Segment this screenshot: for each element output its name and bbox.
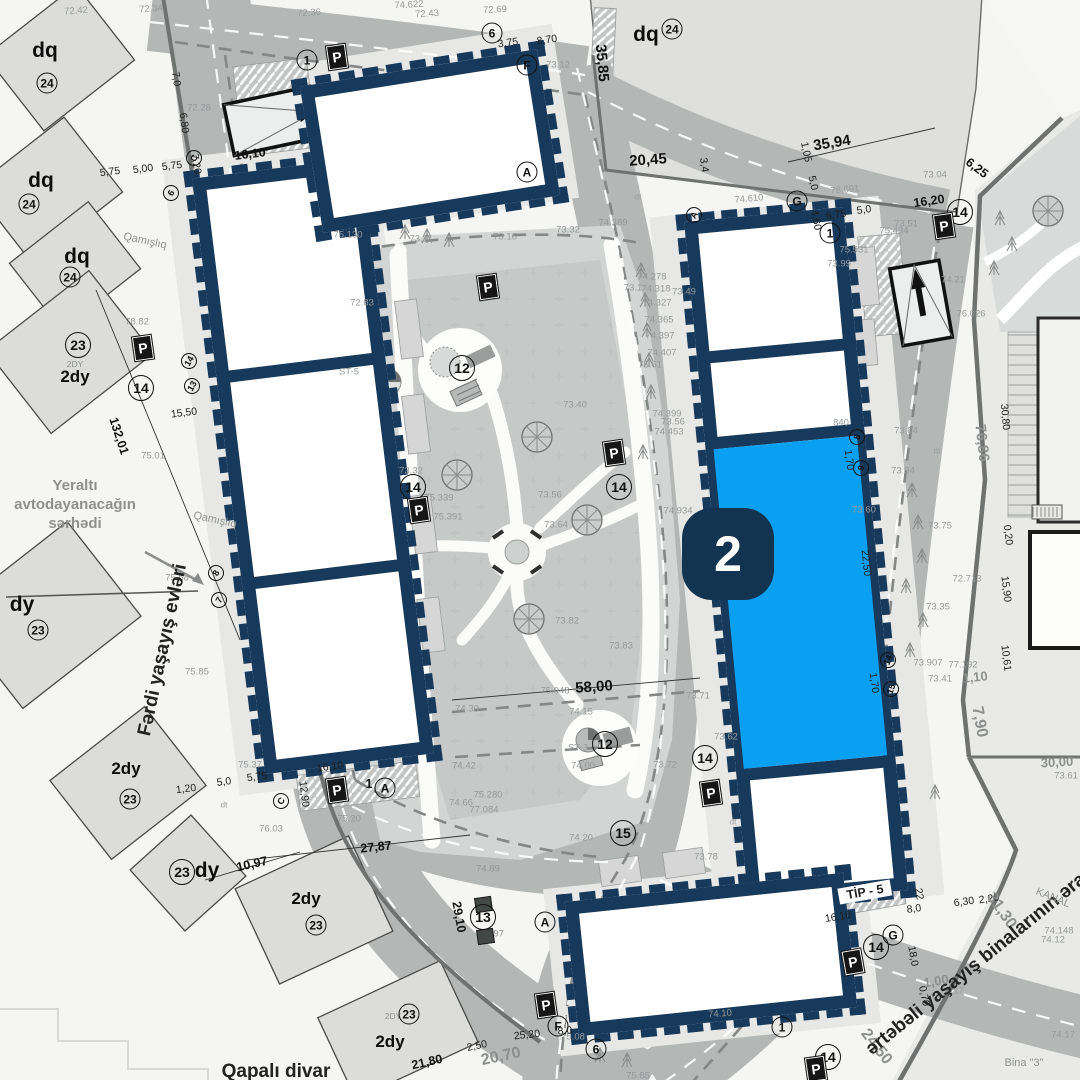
ref-circle-23: 23: [399, 1004, 420, 1025]
ref-circle-14: 14: [606, 474, 632, 500]
block-number-badge[interactable]: 2: [682, 508, 774, 600]
ref-circle-23: 23: [65, 332, 91, 358]
ref-circle-23: 23: [306, 915, 327, 936]
container-icon: [476, 928, 495, 945]
roundabout: [488, 523, 546, 581]
ref-circle-23: 23: [120, 789, 141, 810]
ref-circle-A: A: [375, 778, 396, 799]
ref-circle-A: A: [535, 912, 556, 933]
ref-circle-24: 24: [19, 194, 40, 215]
highlighted-block[interactable]: [714, 436, 888, 769]
ref-circle-12: 12: [449, 355, 475, 381]
parking-icon: P: [700, 780, 722, 806]
parking-icon: P: [805, 1056, 827, 1080]
ref-circle-14: 14: [128, 375, 154, 401]
ref-circle-F: F: [548, 1016, 569, 1037]
parking-icon: P: [326, 777, 348, 803]
parking-icon: P: [603, 440, 625, 466]
ref-circle-12: 12: [592, 731, 618, 757]
ref-circle-24: 24: [662, 19, 683, 40]
ref-circle-23: 23: [169, 859, 195, 885]
ref-circle-1: 1: [772, 1017, 793, 1038]
building-east-divider-1: [706, 338, 847, 363]
parking-icon: P: [933, 213, 955, 239]
parking-icon: P: [535, 992, 557, 1018]
ref-circle-14: 14: [863, 934, 889, 960]
parking-icon: P: [408, 497, 430, 523]
ref-circle-13: 13: [470, 904, 496, 930]
ref-circle-6: 6: [482, 23, 503, 44]
ref-circle-A: A: [517, 162, 538, 183]
ref-circle-23: 23: [28, 620, 49, 641]
parking-icon: P: [477, 274, 499, 300]
ref-circle-1: 1: [297, 50, 318, 71]
ref-circle-F: F: [517, 55, 538, 76]
parking-icon: P: [132, 335, 154, 361]
ref-circle-14: 14: [400, 474, 426, 500]
ref-circle-G: G: [787, 191, 808, 212]
ref-circle-1: 1: [820, 223, 841, 244]
site-plan: 2 72.4272.3472.3674.62272.4372.6972.2878…: [0, 0, 1080, 1080]
block-number: 2: [714, 525, 742, 583]
ref-circle-14: 14: [692, 745, 718, 771]
ref-circle-15: 15: [610, 820, 636, 846]
ref-circle-6: 6: [586, 1039, 607, 1060]
building-west-divider-2: [251, 559, 401, 589]
parking-icon: P: [326, 44, 348, 70]
ref-circle-24: 24: [60, 267, 81, 288]
parking-icon: P: [842, 949, 865, 976]
building-west-divider-1: [226, 353, 376, 383]
ref-circle-24: 24: [37, 73, 58, 94]
